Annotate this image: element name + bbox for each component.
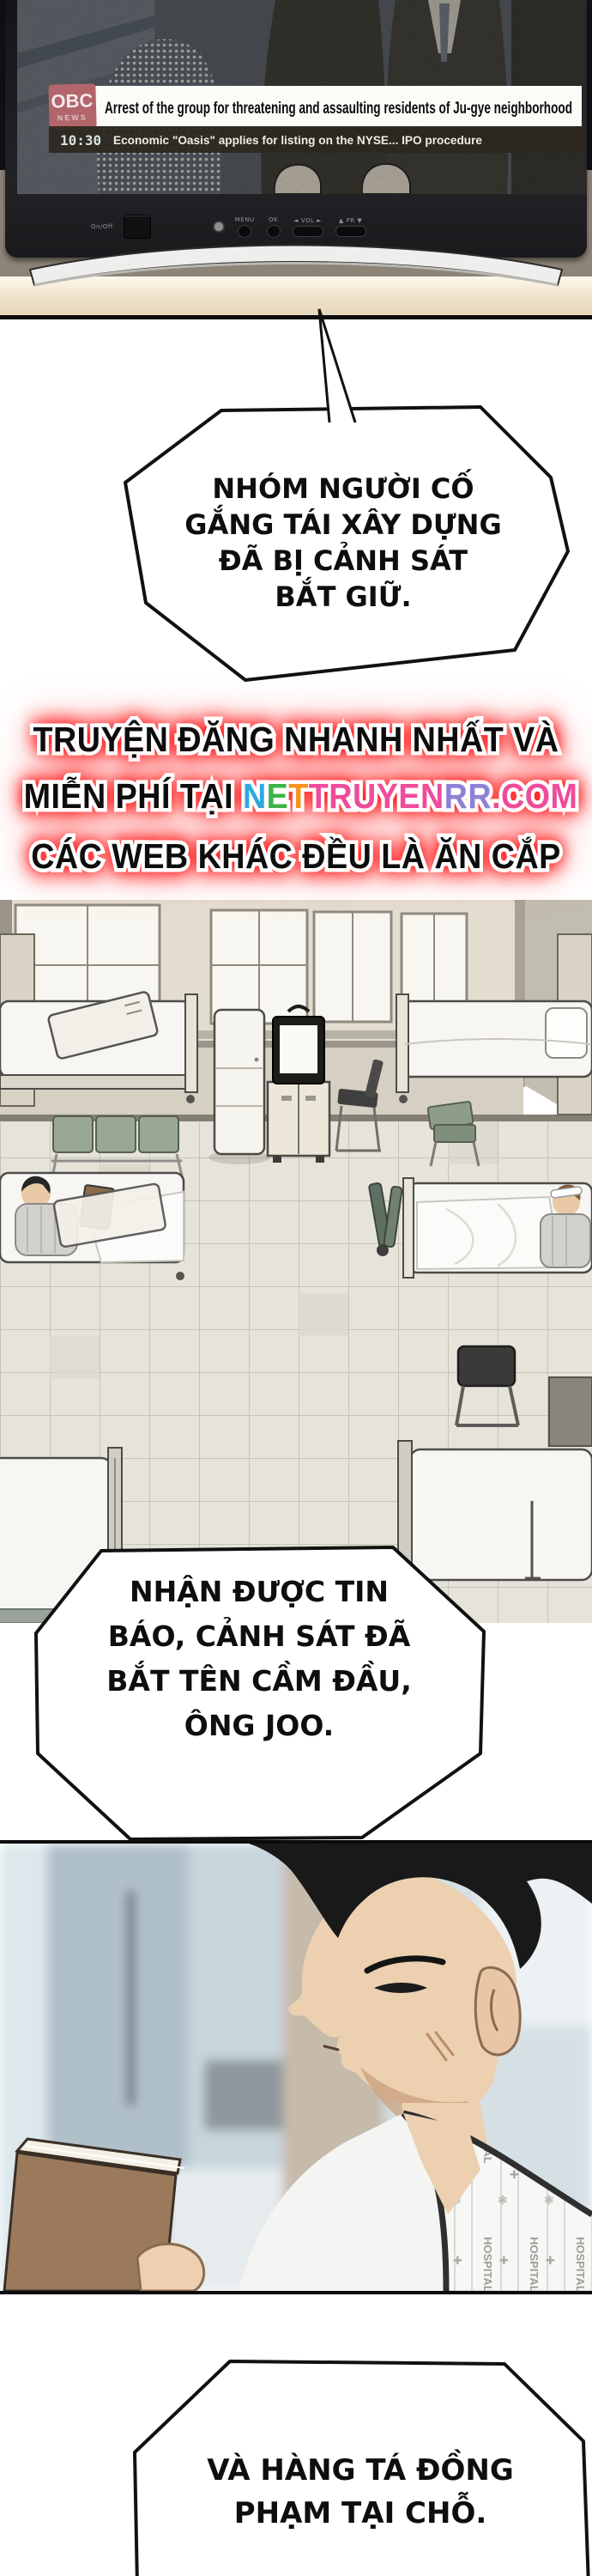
site-letter: T — [288, 776, 309, 816]
bubble-1-tail — [319, 309, 355, 422]
tv-screen: OBC NEWS Arrest of the group for threate… — [17, 0, 587, 194]
bed-top-left — [0, 991, 197, 1103]
promo-line-1: TRUYỆN ĐĂNG NHANH NHẤT VÀ — [24, 720, 569, 760]
power-label: On/Off — [91, 223, 113, 230]
site-letter: R — [329, 776, 353, 816]
site-letter: E — [398, 776, 420, 816]
bubble-2-text: NHẬN ĐƯỢC TIN BÁO, CẢNH SÁT ĐÃ BẮT TÊN C… — [33, 1570, 486, 1748]
indicator-led — [214, 222, 223, 231]
hospital-ward-art — [0, 900, 592, 1623]
site-letter: M — [551, 776, 578, 816]
site-letter: R — [468, 776, 492, 816]
site-letter: N — [420, 776, 444, 816]
bed-mid-right — [403, 1178, 592, 1278]
bedside-cabinet — [549, 1377, 592, 1446]
site-letter: N — [243, 776, 267, 816]
obc-logo: OBC NEWS — [48, 83, 96, 129]
volume-label: ◄ VOL ► — [293, 217, 322, 224]
blanket — [417, 1197, 561, 1269]
panel-tv-news: OBC NEWS Arrest of the group for threate… — [0, 0, 592, 319]
site-letter: E — [267, 776, 289, 816]
webtoon-page: OBC NEWS Arrest of the group for threate… — [0, 0, 592, 2576]
bubble-1-text: NHÓM NGƯỜI CỐ GẮNG TÁI XÂY DỰNG ĐÃ BỊ CẢ… — [129, 471, 558, 615]
broadcast-time: 10:30 — [60, 132, 101, 149]
site-letter: O — [525, 776, 551, 816]
site-letter: R — [444, 776, 468, 816]
ticker-text: Economic "Oasis" applies for listing on … — [113, 134, 482, 147]
pillow — [546, 1008, 587, 1058]
tv-screen-art: OBC NEWS Arrest of the group for threate… — [17, 0, 587, 194]
news-ticker: 10:30 Economic "Oasis" applies for listi… — [49, 126, 582, 153]
promo-line-3: CÁC WEB KHÁC ĐỀU LÀ ĂN CẮP — [24, 836, 569, 877]
man-reading-art: HOSPITAL ✚ ✚ ❃ — [0, 1844, 592, 2291]
bubble-3-text: VÀ HÀNG TÁ ĐỒNG PHẠM TẠI CHỖ. — [133, 2449, 588, 2535]
site-letter: U — [353, 776, 377, 816]
panel-man-reading: HOSPITAL ✚ ✚ ❃ — [0, 1840, 592, 2294]
promo-line-2-prefix: MIỄN PHÍ TẠI — [24, 776, 243, 816]
program-label: ▲ PR ▼ — [339, 217, 362, 224]
ok-label: OK — [269, 216, 278, 223]
promo-line-2: MIỄN PHÍ TẠI NETTRUYENRR.COM — [24, 776, 569, 817]
news-banner: OBC NEWS Arrest of the group for threate… — [48, 83, 582, 129]
promo-banner: TRUYỆN ĐĂNG NHANH NHẤT VÀ MIỄN PHÍ TẠI N… — [0, 711, 592, 903]
fridge — [208, 1010, 270, 1164]
site-letter: . — [492, 776, 501, 816]
hand — [137, 2244, 204, 2291]
site-letter: C — [501, 776, 525, 816]
panel-hospital-ward — [0, 900, 592, 1623]
menu-label: MENU — [235, 216, 255, 223]
wall-unit — [204, 2060, 297, 2130]
obc-logo-subtext: NEWS — [57, 113, 88, 123]
ward-tv-cart — [268, 1006, 329, 1163]
site-name[interactable]: NETTRUYENRR.COM — [243, 776, 577, 816]
news-headline: Arrest of the group for threatening and … — [105, 100, 572, 118]
site-letter: T — [309, 776, 329, 816]
site-letter: Y — [377, 776, 399, 816]
tv-set: OBC NEWS Arrest of the group for threate… — [5, 0, 587, 258]
obc-logo-text: OBC — [51, 89, 94, 112]
door-handle — [127, 1891, 135, 2105]
